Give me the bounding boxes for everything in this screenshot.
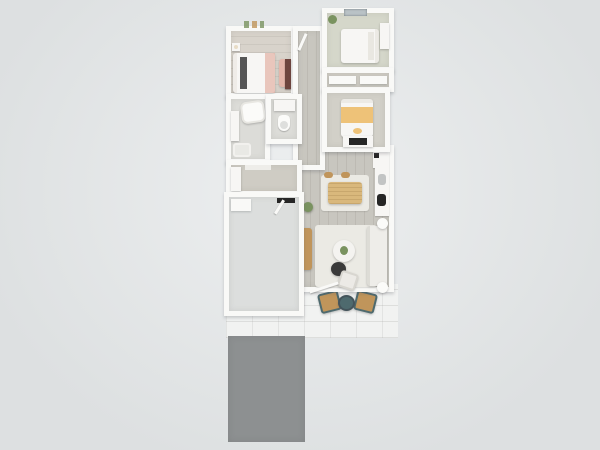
master-bathroom: [226, 94, 270, 164]
coffee-table-plant: [340, 246, 348, 255]
bed-2-pillows: [368, 32, 374, 60]
plant-bed2: [328, 15, 337, 24]
master-bed: [233, 53, 275, 93]
master-bed-throw: [265, 53, 275, 93]
window-bed2: [344, 9, 367, 16]
bed-3: [341, 99, 373, 137]
hall-bathroom: [266, 94, 302, 144]
bathtub: [240, 99, 267, 124]
wardrobe: [231, 167, 241, 191]
toilet-lid: [280, 121, 288, 129]
plant: [303, 202, 313, 212]
dining-table: [328, 182, 362, 204]
bed-3-cushion: [353, 128, 362, 134]
tv-3: [349, 138, 367, 145]
driveway: [228, 336, 305, 442]
vanity-hall: [274, 100, 295, 111]
wall-decor: [244, 21, 268, 28]
front-door-leaf: [297, 33, 307, 51]
bed-2: [341, 29, 379, 63]
garage-shelf: [231, 199, 251, 211]
garage: [224, 192, 304, 316]
coffee-maker: [374, 153, 379, 158]
patio-table: [338, 295, 355, 311]
dining-chair-top: [324, 172, 333, 178]
sofa: [367, 226, 387, 286]
kitchen-sink: [378, 174, 386, 185]
closet-door-right: [360, 76, 387, 84]
stove-cooktop: [377, 194, 386, 206]
shower-master: [233, 143, 251, 157]
nightstand-lamp: [234, 45, 238, 49]
floor-lamp-top: [377, 218, 388, 229]
garage-entry-door-leaf: [274, 199, 285, 214]
bedroom-3: [322, 88, 390, 152]
bedroom-2: [322, 8, 394, 72]
floor-lamp-bottom: [377, 282, 388, 293]
tall-cabinet: [285, 59, 291, 89]
master-bedroom: [226, 26, 296, 98]
master-bed-pillows: [240, 57, 247, 89]
walk-in-closet: [226, 160, 302, 196]
dresser-2: [380, 23, 389, 49]
floor-plan-scene: [0, 0, 600, 450]
vanity-master: [231, 111, 239, 141]
closet-door-left: [329, 76, 356, 84]
dining-chair-top2: [341, 172, 350, 178]
bed-3-blanket: [341, 107, 373, 123]
closet-shelf: [245, 165, 271, 170]
